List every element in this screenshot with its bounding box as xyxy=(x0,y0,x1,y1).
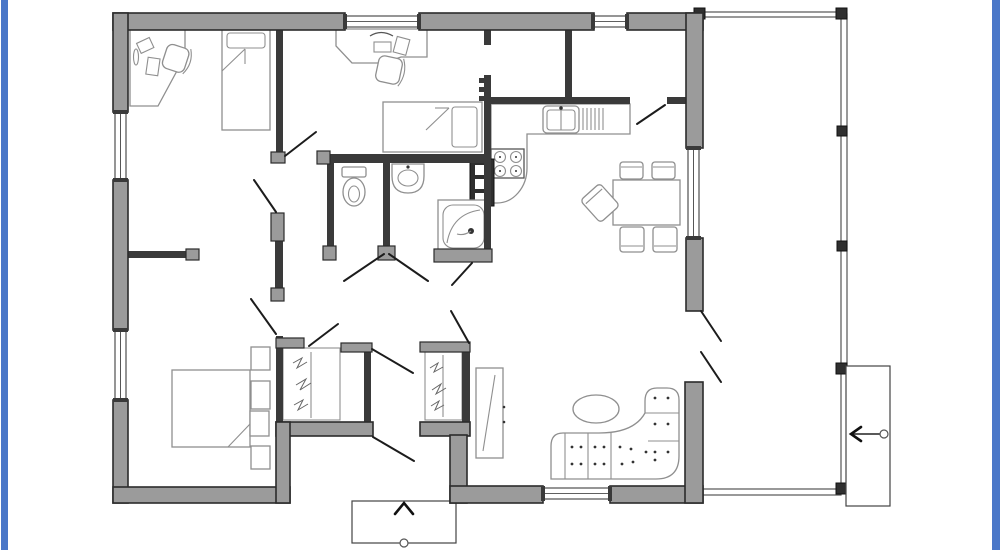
dining-chair xyxy=(620,227,644,252)
frame-left-border xyxy=(1,0,8,550)
dining-table xyxy=(613,180,680,225)
wall-entry-right xyxy=(420,422,470,436)
door-porch-leaf-1 xyxy=(701,311,721,341)
single-bed xyxy=(222,28,270,130)
window-right-dining xyxy=(686,146,701,240)
entry-start-node xyxy=(400,539,408,547)
floor-plan-drawing xyxy=(0,0,1000,550)
tv-cabinet xyxy=(476,368,505,458)
wall-wardrobe-right xyxy=(462,352,470,423)
wall-bedroom1-bottom xyxy=(128,251,190,258)
stair-start-node xyxy=(880,430,888,438)
nightstand-column xyxy=(250,347,270,469)
porch-post xyxy=(836,483,847,494)
wall-kitchen-top-stub xyxy=(667,97,686,104)
single-bed xyxy=(383,102,482,152)
wall-bathroom-top xyxy=(320,154,490,163)
door-porch-leaf-2 xyxy=(701,352,721,382)
dining-chair xyxy=(653,227,677,252)
wall-top-center xyxy=(419,13,594,30)
wall-right-upper xyxy=(686,13,703,148)
shower-cabin xyxy=(438,200,489,253)
window-left-1 xyxy=(113,110,128,182)
floor-plan-canvas xyxy=(0,0,1000,550)
wall-wc-washroom-divider xyxy=(383,163,390,247)
window-top-1 xyxy=(343,14,421,29)
wall-top-left xyxy=(113,13,345,30)
porch-rail-top xyxy=(703,12,843,17)
window-left-2 xyxy=(113,328,128,402)
double-bed xyxy=(172,370,250,447)
faucet xyxy=(559,106,563,110)
wall-kitchen-left xyxy=(484,75,491,252)
dining-chair xyxy=(652,162,675,179)
outdoor-staircase xyxy=(846,366,890,506)
wall-sink xyxy=(392,164,424,193)
toilet xyxy=(342,167,366,206)
kitchen-sink xyxy=(543,106,579,133)
wall-kitchen-top xyxy=(491,97,630,104)
wall-hall-center-stub xyxy=(364,350,371,423)
wall-left-upper xyxy=(113,13,128,112)
coffee-table xyxy=(573,395,619,423)
entry-steps xyxy=(352,501,456,547)
wall-wardrobe-left xyxy=(276,336,283,423)
wall-left-middle xyxy=(113,180,128,330)
wall-entry-left-step xyxy=(276,422,290,503)
porch-post xyxy=(836,363,847,374)
wall-bedrooms-divider xyxy=(276,30,283,156)
wall-bottom-left xyxy=(113,487,290,503)
wall-right-middle xyxy=(686,238,703,311)
stove xyxy=(491,149,524,178)
porch-rail-bottom xyxy=(700,489,841,495)
wall-bottom-center xyxy=(450,486,543,503)
faucet xyxy=(406,165,409,168)
window-top-2 xyxy=(591,14,629,29)
porch-post xyxy=(837,126,847,136)
porch-post xyxy=(836,8,847,19)
wall-wc-left xyxy=(327,163,334,247)
wall-right-lower xyxy=(685,382,703,503)
frame-right-border xyxy=(992,0,1000,550)
wall-kitchen-left-upper xyxy=(484,30,491,45)
wall-storage-divider xyxy=(565,30,572,97)
porch-post xyxy=(837,241,847,251)
porch xyxy=(694,8,890,506)
window-bottom-living xyxy=(541,486,612,501)
dining-chair xyxy=(620,162,643,179)
